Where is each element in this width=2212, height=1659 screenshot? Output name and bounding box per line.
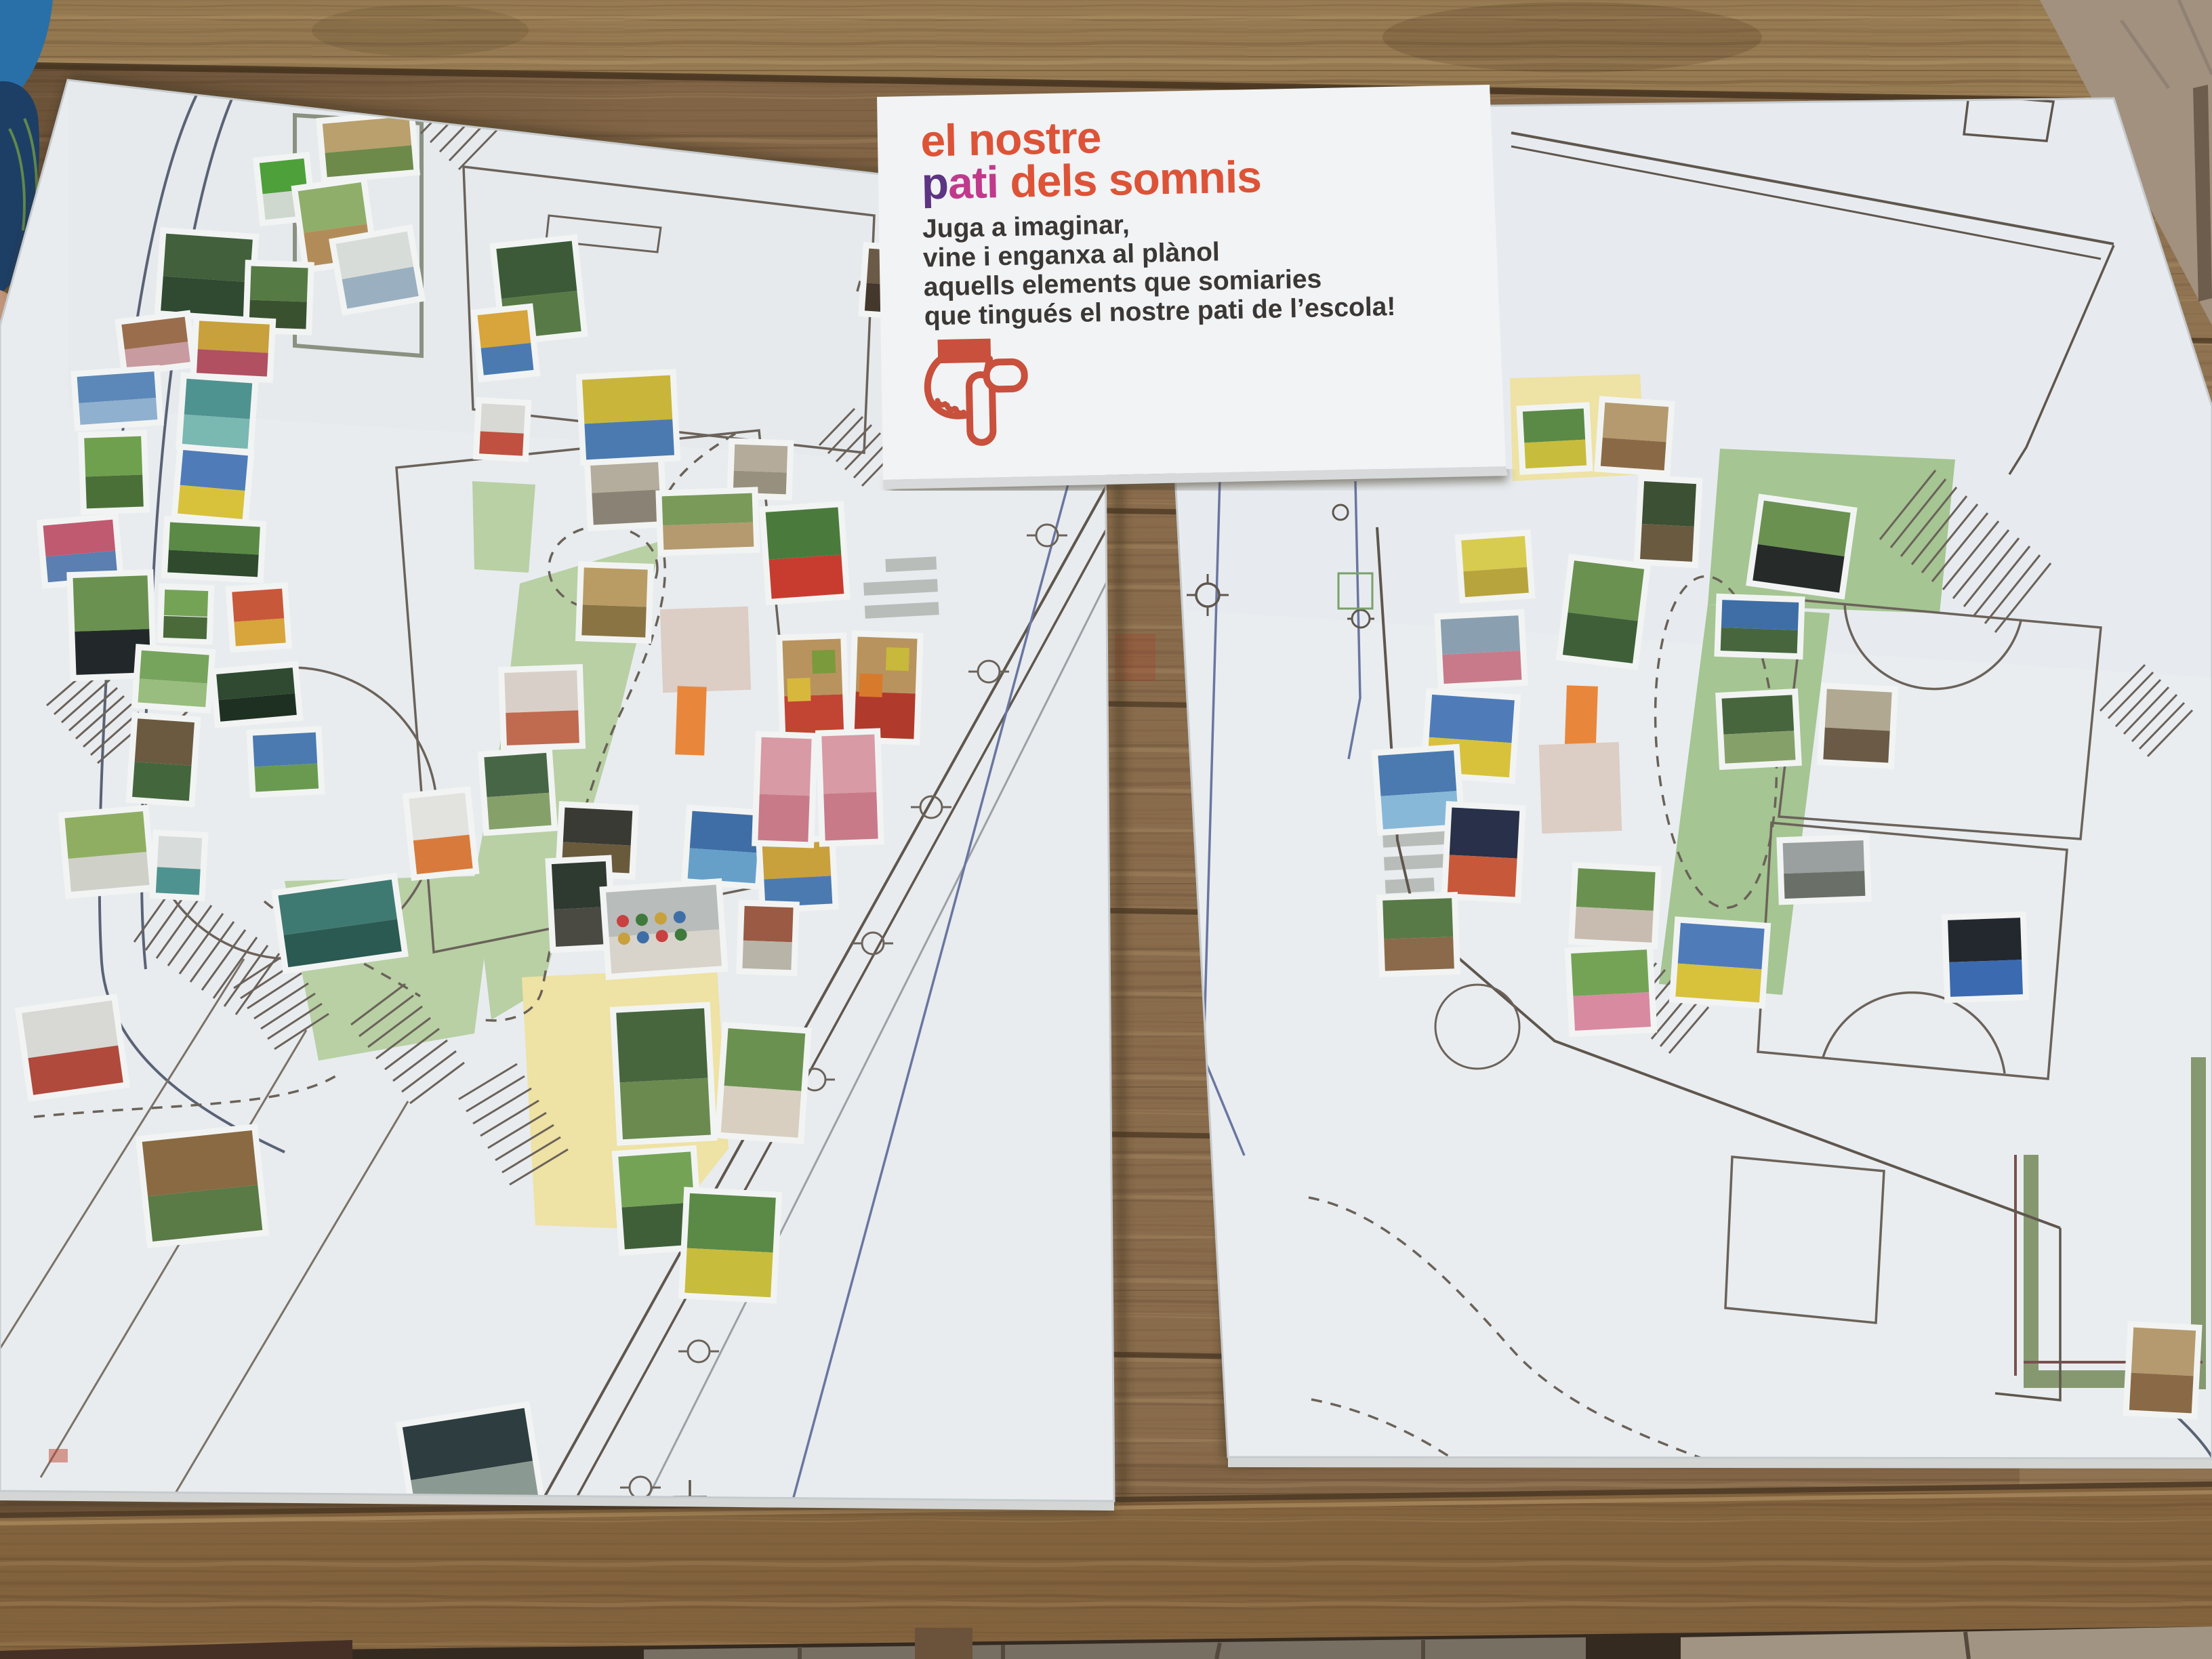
svg-text:pati dels somnis: pati dels somnis [921, 151, 1262, 208]
svg-text:Juga a imaginar,: Juga a imaginar, [922, 210, 1130, 243]
